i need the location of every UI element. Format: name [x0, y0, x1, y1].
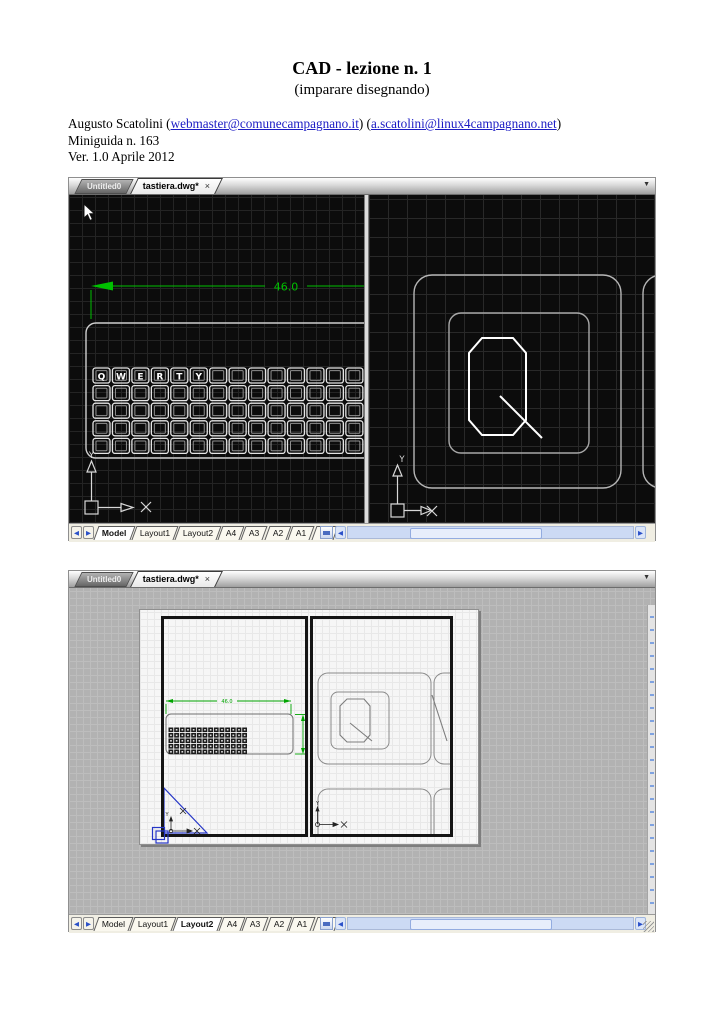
doc-tab-tastiera[interactable]: tastiera.dwg*×: [130, 571, 223, 587]
layout-tabs: Model Layout1 Layout2 A4 A3 A2 A1 A0: [96, 526, 337, 540]
scroll-marks: [650, 605, 654, 914]
document-header: CAD - lezione n. 1 (imparare disegnando): [0, 58, 724, 99]
svg-text:Y: Y: [194, 372, 202, 382]
version-line: Ver. 1.0 Aprile 2012: [68, 149, 561, 166]
viewport-right-drawing: Y: [313, 619, 450, 834]
document-page: CAD - lezione n. 1 (imparare disegnando)…: [0, 0, 724, 1024]
page-subtitle: (imparare disegnando): [0, 82, 724, 99]
ucs-y-label: Y: [88, 451, 95, 461]
model-space-canvas[interactable]: 46.0 QWERTY Y: [69, 195, 655, 523]
mouse-cursor-icon: [83, 203, 99, 223]
dimension-text: 46.0: [221, 699, 232, 705]
tab-close-icon[interactable]: ×: [205, 574, 210, 584]
author-block: Augusto Scatolini (webmaster@comunecampa…: [68, 116, 561, 166]
tab-layout1[interactable]: Layout1: [130, 917, 177, 931]
keyboard-drawing: 46.0 QWERTY Y: [69, 195, 364, 523]
ucs-icon: Y: [315, 801, 347, 828]
key-outlines: [318, 673, 450, 834]
tab-layout2[interactable]: Layout2: [173, 917, 223, 931]
paper-space-canvas[interactable]: 46.0 Y: [69, 588, 655, 914]
svg-text:W: W: [116, 372, 126, 382]
tab-close-icon[interactable]: ×: [205, 181, 210, 191]
author-name: Augusto Scatolini (: [68, 116, 171, 131]
letter-q-polyline: [469, 338, 542, 438]
author-line: Augusto Scatolini (webmaster@comunecampa…: [68, 116, 561, 133]
keyboard-outline: [86, 323, 364, 458]
miniguida-line: Miniguida n. 163: [68, 133, 561, 150]
tab-scroll-right-button[interactable]: ▶: [83, 526, 94, 539]
tab-model[interactable]: Model: [93, 917, 133, 931]
dimension-46: [91, 282, 364, 320]
layout-tab-bar: ◀ ▶ Model Layout1 Layout2 A4 A3 A2 A1 A0…: [69, 523, 655, 542]
viewport-left-drawing: 46.0 Y: [164, 619, 305, 834]
svg-text:E: E: [137, 372, 143, 382]
svg-text:Q: Q: [98, 372, 106, 382]
author-suffix: ): [557, 116, 561, 131]
cad-window-layout: Untitled0 tastiera.dwg*× ▼: [68, 570, 656, 932]
q-key-zoom-drawing: Y: [369, 195, 655, 523]
tab-scroll-left-button[interactable]: ◀: [71, 526, 82, 539]
ucs-icon: Y: [85, 451, 151, 514]
hscroll-thumb[interactable]: [410, 528, 542, 539]
resize-grip[interactable]: [643, 921, 654, 932]
page-title: CAD - lezione n. 1: [0, 58, 724, 79]
tab-layout2[interactable]: Layout2: [174, 526, 221, 540]
hscroll-track[interactable]: [347, 917, 634, 930]
ucs-y-label: Y: [398, 455, 405, 465]
layout-tabs: Model Layout1 Layout2 A4 A3 A2 A1 A0: [96, 917, 338, 931]
ucs-y-label: Y: [164, 812, 169, 818]
tab-layout1[interactable]: Layout1: [131, 526, 178, 540]
hscroll-track[interactable]: [347, 526, 634, 539]
cad-window-model: Untitled0 tastiera.dwg*× ▼ 46.0 QWERTY: [68, 177, 656, 541]
paper-ucs-origin-squares: [151, 826, 173, 846]
hscroll-left-button[interactable]: ◀: [335, 526, 346, 539]
layout-tab-bar: ◀ ▶ Model Layout1 Layout2 A4 A3 A2 A1 A0…: [69, 914, 655, 933]
tab-menu-arrow-icon[interactable]: ▼: [643, 181, 650, 188]
doc-tab-untitled[interactable]: Untitled0: [74, 179, 134, 194]
tabbar-splitter-button[interactable]: [320, 917, 333, 930]
tab-scroll-left-button[interactable]: ◀: [71, 917, 82, 930]
email-link-1[interactable]: webmaster@comunecampagnano.it: [171, 116, 359, 131]
key-outlines: [414, 275, 655, 488]
email-link-2[interactable]: a.scatolini@linux4campagnano.net: [371, 116, 557, 131]
author-separator: ) (: [359, 116, 371, 131]
tab-menu-arrow-icon[interactable]: ▼: [643, 574, 650, 581]
doc-tab-tastiera[interactable]: tastiera.dwg*×: [130, 178, 223, 194]
hscroll-right-button[interactable]: ▶: [635, 526, 646, 539]
document-tab-bar: Untitled0 tastiera.dwg*× ▼: [69, 178, 655, 195]
tab-scroll-right-button[interactable]: ▶: [83, 917, 94, 930]
hscroll-thumb[interactable]: [410, 919, 552, 930]
keyboard-keys: [169, 728, 248, 755]
document-tab-bar: Untitled0 tastiera.dwg*× ▼: [69, 571, 655, 588]
doc-tab-untitled[interactable]: Untitled0: [74, 572, 134, 587]
tab-model[interactable]: Model: [93, 526, 135, 540]
svg-text:T: T: [176, 372, 183, 382]
right-edge-scrollbar[interactable]: [647, 605, 655, 914]
dimension-text: 46.0: [274, 281, 299, 294]
keyboard-keys: QWERTY: [93, 368, 363, 453]
svg-text:R: R: [156, 372, 163, 382]
tabbar-splitter-button[interactable]: [320, 526, 333, 539]
hscroll-left-button[interactable]: ◀: [335, 917, 346, 930]
